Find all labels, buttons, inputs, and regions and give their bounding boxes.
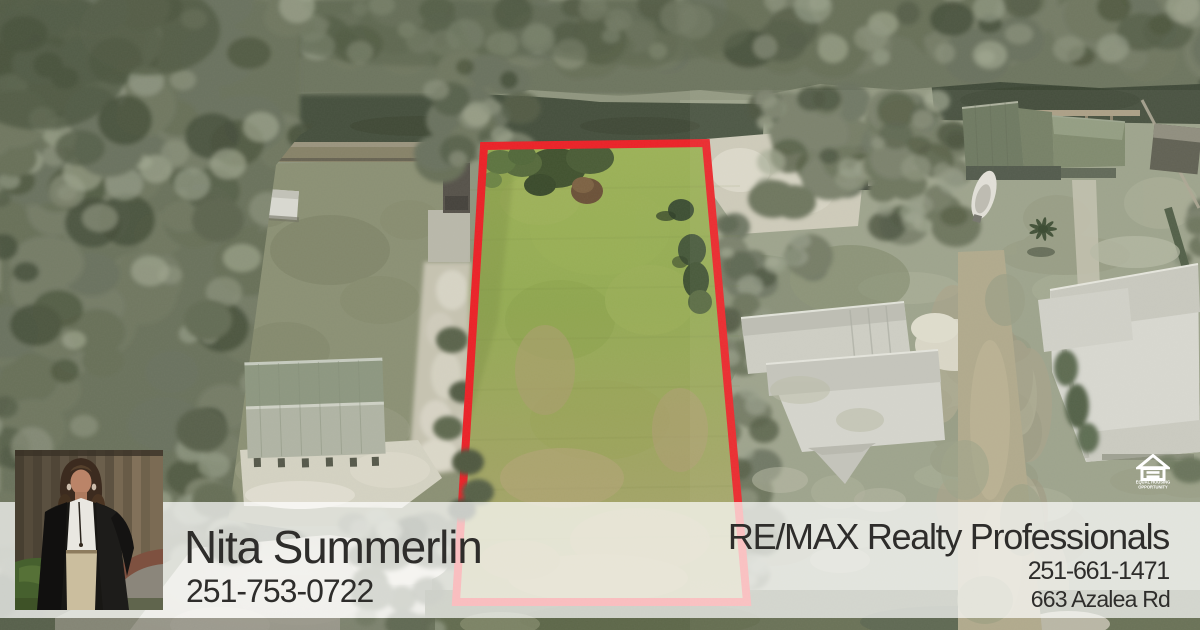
- svg-text:OPPORTUNITY: OPPORTUNITY: [1138, 485, 1168, 490]
